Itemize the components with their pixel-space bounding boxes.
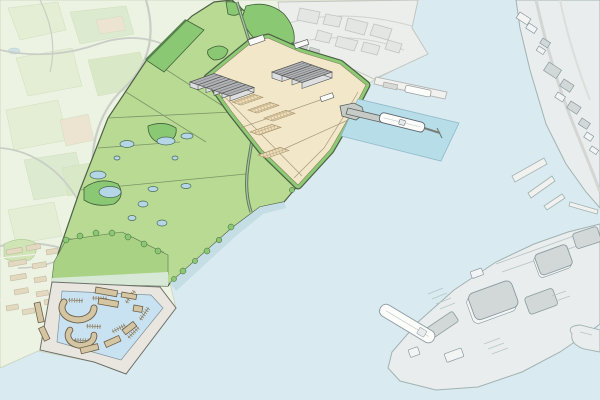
map-canvas (0, 0, 600, 400)
bush (180, 268, 186, 274)
ship-deckhouse (399, 119, 406, 125)
pond (99, 187, 121, 198)
pond (181, 184, 191, 189)
bush (155, 248, 161, 254)
pond (138, 201, 148, 207)
bush (228, 224, 234, 230)
pond (120, 141, 134, 148)
bush (125, 234, 131, 240)
pond (157, 220, 167, 226)
marina-building (133, 305, 143, 312)
bush (289, 187, 294, 192)
bush (93, 230, 99, 236)
pond (181, 133, 193, 139)
bush (216, 237, 222, 243)
bush (63, 237, 69, 243)
bush (204, 248, 210, 254)
field (60, 114, 94, 146)
pond (90, 171, 106, 179)
pond (148, 187, 158, 192)
bush (77, 233, 83, 239)
bush (141, 241, 147, 247)
pond (157, 137, 175, 145)
pond (114, 156, 120, 160)
pond (172, 156, 178, 160)
pond (128, 216, 136, 221)
bush (109, 230, 115, 236)
bush (192, 258, 197, 263)
bush (172, 277, 177, 282)
masterplan-map (0, 0, 600, 400)
